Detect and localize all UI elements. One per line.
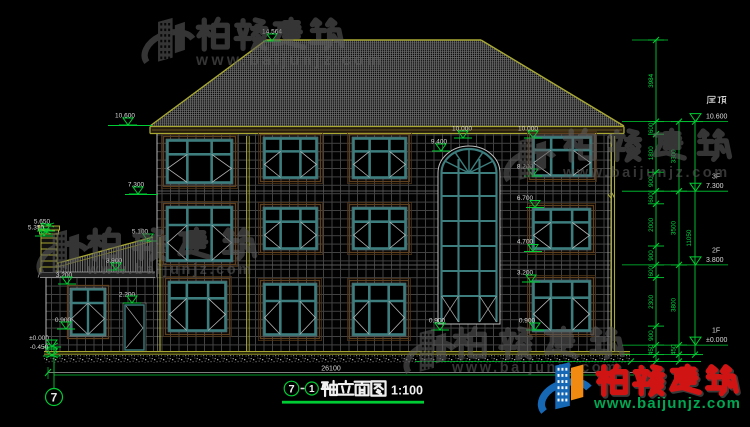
svg-text:3800: 3800 — [671, 298, 678, 313]
svg-text:±0.000: ±0.000 — [29, 335, 49, 342]
svg-text:450: 450 — [648, 344, 655, 355]
svg-text:900: 900 — [648, 250, 655, 261]
svg-text:450: 450 — [671, 344, 678, 355]
svg-text:3.200: 3.200 — [56, 272, 73, 279]
svg-text:±0.000: ±0.000 — [706, 337, 727, 344]
svg-text:3.800: 3.800 — [706, 257, 724, 264]
svg-text:3500: 3500 — [671, 221, 678, 236]
svg-text:1: 1 — [309, 384, 315, 395]
svg-text:11050: 11050 — [686, 229, 693, 247]
svg-text:www.baijunjz.com: www.baijunjz.com — [195, 52, 384, 69]
svg-text:2000: 2000 — [648, 217, 655, 232]
svg-text:0.900: 0.900 — [55, 317, 72, 324]
svg-text:7: 7 — [288, 384, 294, 396]
svg-text:900: 900 — [648, 330, 655, 341]
svg-text:600: 600 — [648, 122, 655, 133]
svg-text:26100: 26100 — [321, 366, 341, 373]
svg-text:-0.450: -0.450 — [30, 344, 49, 351]
svg-text:1F: 1F — [712, 328, 720, 335]
svg-text:600: 600 — [648, 266, 655, 277]
svg-text:10.600: 10.600 — [706, 114, 728, 121]
svg-text:2.200: 2.200 — [119, 292, 136, 299]
svg-text:600: 600 — [648, 192, 655, 203]
svg-text:www.baijunjz.com: www.baijunjz.com — [451, 360, 619, 376]
svg-text:7: 7 — [51, 391, 58, 405]
svg-text:www.baijunjz.com: www.baijunjz.com — [593, 395, 741, 412]
svg-text:2300: 2300 — [648, 294, 655, 309]
svg-text:7.300: 7.300 — [706, 183, 724, 190]
svg-text:www.baijunjz.com: www.baijunjz.com — [86, 262, 254, 278]
svg-text:1:100: 1:100 — [391, 384, 423, 398]
svg-text:2F: 2F — [712, 247, 720, 254]
svg-text:3984: 3984 — [648, 73, 655, 88]
svg-text:www.baijunjz.com: www.baijunjz.com — [562, 165, 730, 181]
